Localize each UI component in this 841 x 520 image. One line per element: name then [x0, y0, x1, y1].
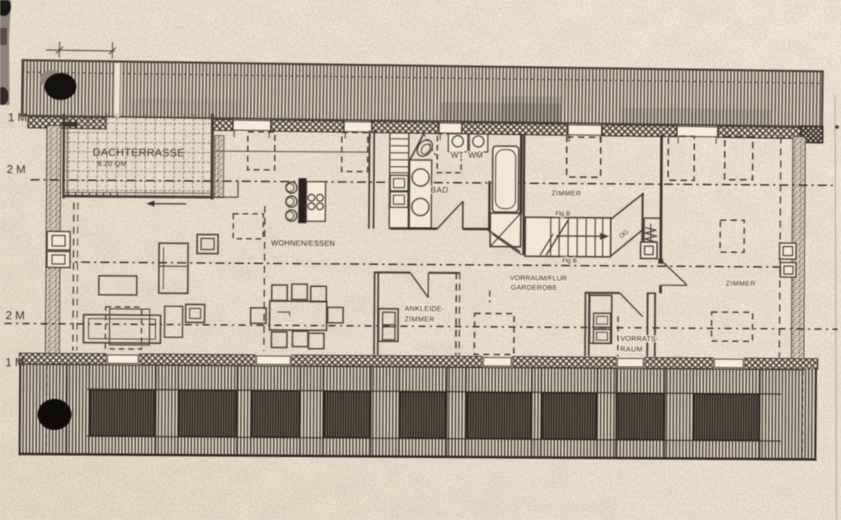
svg-text:BAD: BAD	[430, 185, 448, 195]
svg-text:DACHTERRASSE: DACHTERRASSE	[93, 147, 185, 160]
svg-text:2 M: 2 M	[7, 164, 26, 176]
svg-text:Flg B: Flg B	[562, 257, 577, 264]
svg-text:Flg B: Flg B	[555, 210, 570, 217]
svg-text:VORRAUM/FLUR: VORRAUM/FLUR	[510, 275, 567, 282]
svg-text:ZIMMER: ZIMMER	[551, 190, 581, 197]
svg-text:VORRATS-: VORRATS-	[620, 334, 659, 343]
svg-text:ZIMMER: ZIMMER	[405, 314, 435, 323]
svg-text:8.20 QM: 8.20 QM	[98, 161, 127, 168]
svg-text:RAUM: RAUM	[620, 344, 642, 353]
svg-text:WT: WT	[451, 151, 464, 160]
svg-text:WOHNEN/ESSEN: WOHNEN/ESSEN	[271, 238, 335, 247]
svg-text:1 M: 1 M	[8, 112, 27, 124]
svg-text:2 M: 2 M	[6, 310, 25, 322]
svg-text:ZIMMER: ZIMMER	[726, 281, 756, 288]
svg-text:WM: WM	[468, 151, 483, 160]
svg-text:GARDEROBE: GARDEROBE	[511, 285, 558, 292]
svg-text:1 M: 1 M	[5, 357, 24, 369]
svg-text:ANKLEIDE-: ANKLEIDE-	[405, 304, 445, 313]
